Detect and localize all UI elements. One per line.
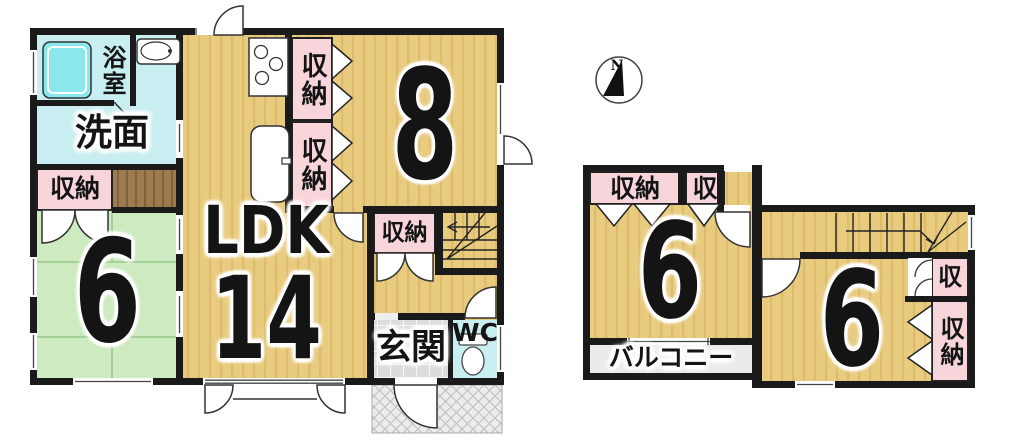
compass-north-label: N	[611, 58, 624, 74]
room-label-entrance: 玄関	[374, 322, 448, 374]
label-2f-storage-d: 収納	[932, 306, 968, 378]
room-label-2f-left6: 6	[600, 208, 740, 336]
label-hall-storage: 収納	[374, 214, 435, 252]
stove-icon	[249, 38, 288, 96]
room-label-tatami6-text: 6	[74, 222, 141, 364]
label-balcony: バルコニー	[592, 343, 750, 371]
room-label-ldk-size: 14	[185, 264, 347, 374]
room-label-storage-left: 収納	[39, 169, 111, 207]
kitchen-sink-icon	[251, 126, 291, 202]
compass-icon: N	[596, 57, 642, 103]
room-label-ldk-size-text: 14	[210, 262, 321, 376]
room-label-wc: WC	[453, 318, 497, 346]
room-label-tatami6: 6	[40, 218, 175, 368]
wood-floor-strip	[112, 167, 183, 209]
sink-icon	[137, 39, 180, 64]
room-label-2f-left6-text: 6	[638, 206, 702, 338]
room-label-2f-right6: 6	[772, 258, 932, 382]
label-kitchen-storage-bottom: 収納	[293, 126, 331, 204]
floor-plan-page: N 浴室 洗面 収納 6 LDK 14 収納 収納 8 収納 玄関 WC 収納 …	[0, 0, 1024, 448]
room-label-washroom: 洗面	[48, 104, 176, 160]
label-kitchen-storage-top: 収納	[293, 44, 331, 116]
room-label-bedroom8-text: 8	[392, 50, 459, 202]
bathtub-icon	[43, 42, 91, 98]
room-label-bedroom8: 8	[355, 48, 495, 203]
label-2f-storage-c: 収	[932, 258, 968, 296]
room-label-2f-right6-text: 6	[820, 254, 884, 386]
room-label-bath: 浴室	[94, 40, 130, 102]
entrance-step	[375, 313, 398, 320]
